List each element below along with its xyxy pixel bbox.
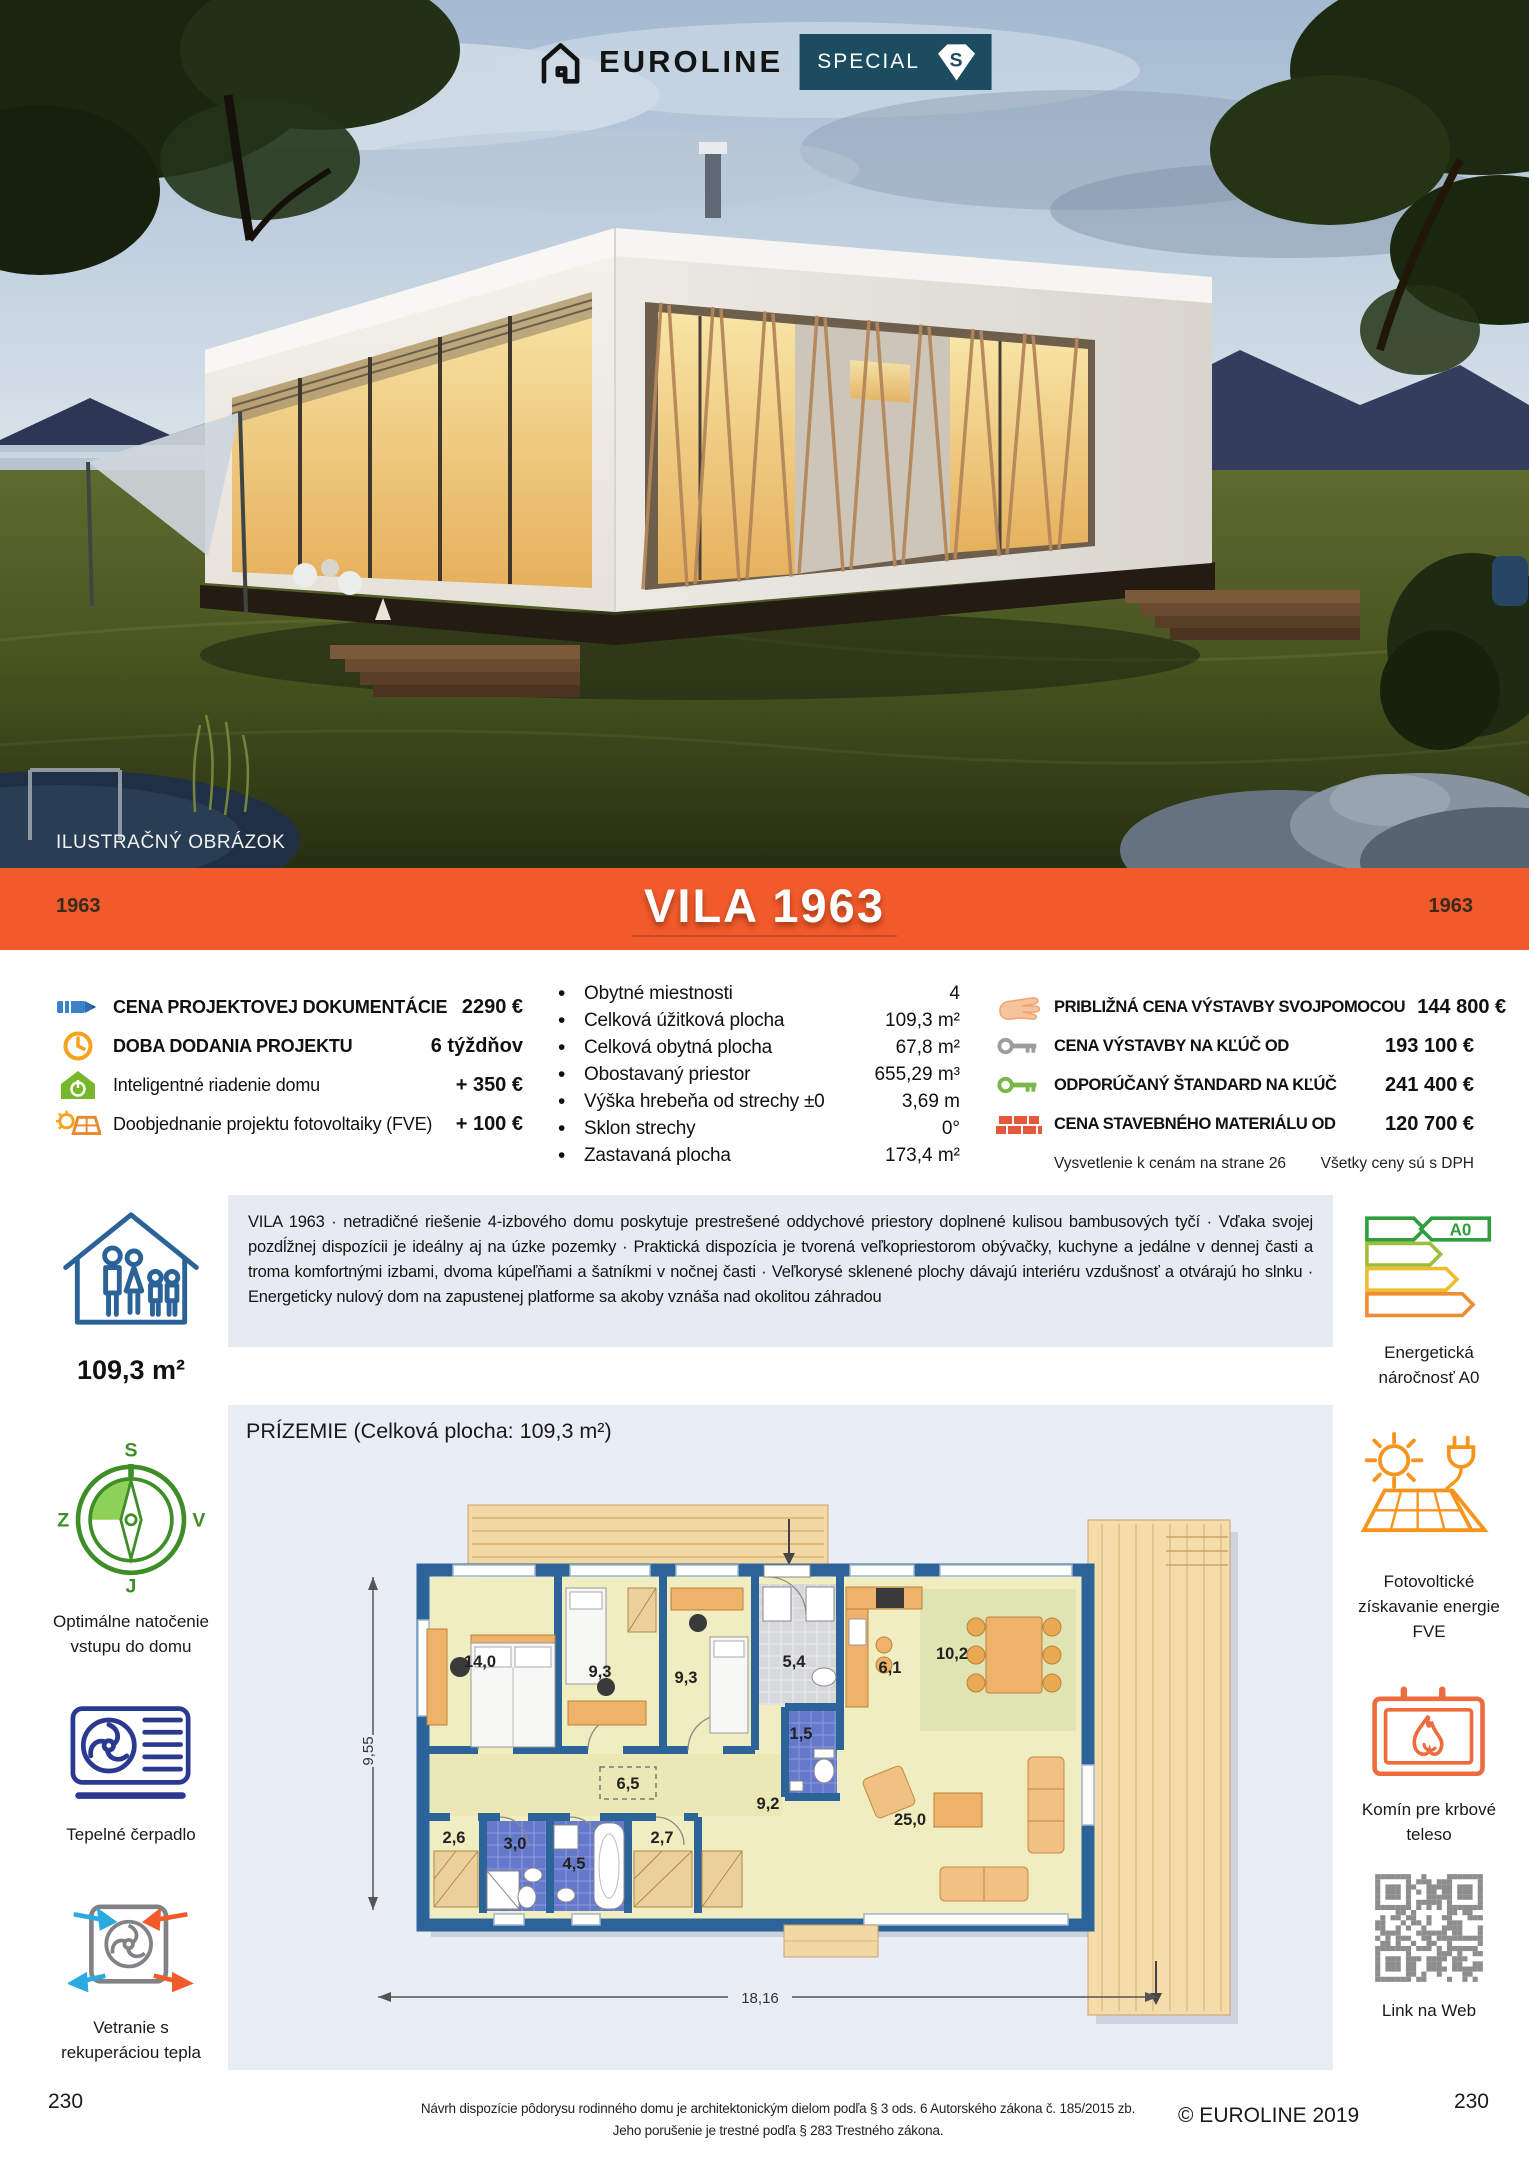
ventilation-label: Vetranie s rekuperáciou tepla [46,2016,216,2065]
bullet-icon: • [558,1117,584,1141]
house-family-icon [56,1207,206,1329]
bullet-icon: • [558,982,584,1006]
info-value: 6 týždňov [431,1035,523,1058]
info-label: Doobjednanie projektu fotovoltaiky (FVE) [113,1114,444,1135]
info-strip: CENA PROJEKTOVEJ DOKUMENTÁCIE 2290 € DOB… [0,950,1529,1182]
spec-label: Výška hrebeňa od strechy ±0 [584,1091,902,1113]
info-label: CENA STAVEBNÉHO MATERIÁLU OD [1054,1115,1373,1134]
info-row: DOBA DODANIA PROJEKTU 6 týždňov [55,1031,523,1061]
compass-icon: S V J Z [52,1438,210,1596]
catalog-page: EUROLINE SPECIAL S ILUSTRAČNÝ OBRÁZOK 19… [0,0,1529,2160]
info-row: CENA VÝSTAVBY NA KĽÚČ OD 193 100 € [996,1031,1474,1061]
room-area-label: 2,6 [443,1829,466,1847]
euroline-house-icon [537,39,583,85]
orientation-label: Optimálne natočenie vstupu do domu [47,1610,215,1659]
spec-row: •Výška hrebeňa od strechy ±03,69 m [558,1088,960,1115]
clock-icon [55,1029,101,1063]
spec-row: •Celková obytná plocha67,8 m² [558,1034,960,1061]
key-green-icon [996,1070,1042,1100]
info-label: ODPORÚČANÝ ŠTANDARD NA KĽÚČ [1054,1076,1373,1095]
bricks-icon [996,1108,1042,1140]
qr-code [1370,1869,1488,1987]
key-gray-icon [996,1031,1042,1061]
smart-home-icon [55,1068,101,1102]
info-value: 2290 € [462,996,523,1019]
spec-label: Obostavaný priestor [584,1064,874,1086]
room-area-label: 6,1 [879,1659,902,1677]
legal-note: Návrh dispozície pôdorysu rodinného domu… [398,2098,1158,2141]
compass-south-label: J [126,1575,137,1596]
info-label: CENA VÝSTAVBY NA KĽÚČ OD [1054,1037,1373,1056]
footnote-right: Všetky ceny sú s DPH [1321,1155,1474,1173]
special-badge: SPECIAL S [799,34,992,90]
room-area-label: 2,7 [651,1829,674,1847]
spec-row: •Obostavaný priestor655,29 m³ [558,1061,960,1088]
room-area-label: 9,3 [675,1669,698,1687]
spec-label: Sklon strechy [584,1118,942,1140]
entry-deck [468,1505,828,1570]
spec-value: 4 [949,983,960,1005]
hero-photo: EUROLINE SPECIAL S ILUSTRAČNÝ OBRÁZOK [0,0,1529,870]
room-area-label: 6,5 [617,1775,640,1793]
bullet-icon: • [558,1144,584,1168]
floor-plan: 14,0 9,3 9,3 5,4 6,1 10,2 1,5 6,5 9,2 25… [228,1405,1333,2070]
width-dimension-label: 18,16 [741,1990,779,2007]
info-row: Inteligentné riadenie domu + 350 € [55,1070,523,1100]
room-area-label: 3,0 [504,1835,527,1853]
room-area-label: 1,5 [790,1725,813,1743]
info-label: Inteligentné riadenie domu [113,1075,444,1096]
floorplan-section: PRÍZEMIE (Celková plocha: 109,3 m²) [228,1405,1333,2070]
terrace [1088,1520,1230,2015]
hand-icon [996,991,1042,1023]
qr-label: Link na Web [1382,1999,1476,2024]
spec-value: 109,3 m² [885,1010,960,1032]
info-label: DOBA DODANIA PROJEKTU [113,1036,419,1057]
info-row: Doobjednanie projektu fotovoltaiky (FVE)… [55,1109,523,1139]
heat-pump-icon [67,1703,195,1805]
info-row: ODPORÚČANÝ ŠTANDARD NA KĽÚČ 241 400 € [996,1070,1474,1100]
sidebar-right: A0 Energetická náročnosť A0 Fotovolti [1336,1185,1522,2024]
legal-line-2: Jeho porušenie je trestné podľa § 283 Tr… [398,2120,1158,2142]
heatpump-label: Tepelné čerpadlo [61,1823,201,1848]
bullet-icon: • [558,1090,584,1114]
info-value: 193 100 € [1385,1035,1474,1058]
ventilation-icon [68,1890,194,2000]
solar-project-icon [55,1109,101,1139]
info-value: 241 400 € [1385,1074,1474,1097]
spec-label: Celková úžitková plocha [584,1010,885,1032]
special-gem-icon: S [936,41,978,83]
illustration-note: ILUSTRAČNÝ OBRÁZOK [56,832,285,854]
title-banner: 1963 VILA 1963 1963 [0,868,1529,950]
height-dimension-label: 9,55 [360,1736,377,1765]
description-text: VILA 1963 · netradičné riešenie 4-izbové… [228,1195,1333,1347]
pencil-icon [55,992,101,1022]
spec-row: •Sklon strechy0° [558,1115,960,1142]
room-area-label: 5,4 [783,1653,807,1671]
energy-label-icon: A0 [1359,1211,1499,1319]
photovoltaic-icon [1358,1432,1500,1550]
spec-label: Celková obytná plocha [584,1037,896,1059]
info-label: PRIBLIŽNÁ CENA VÝSTAVBY SVOJPOMOCOU [1054,998,1405,1017]
spec-value: 173,4 m² [885,1145,960,1167]
model-code-left: 1963 [56,895,101,918]
total-area-value: 109,3 m² [77,1355,185,1386]
model-code-right: 1963 [1429,895,1474,918]
pricing-footnotes: Vysvetlenie k cenám na strane 26 Všetky … [996,1155,1474,1173]
spec-row: •Zastavaná plocha173,4 m² [558,1142,960,1169]
info-row: CENA PROJEKTOVEJ DOKUMENTÁCIE 2290 € [55,992,523,1022]
project-pricing-column: CENA PROJEKTOVEJ DOKUMENTÁCIE 2290 € DOB… [55,992,523,1139]
spec-value: 67,8 m² [896,1037,960,1059]
sidebar-left: 109,3 m² S V J Z Optimálne natočenie vst… [40,1185,222,2065]
room-area-label: 9,3 [589,1663,612,1681]
floorplan-heading: PRÍZEMIE (Celková plocha: 109,3 m²) [246,1419,612,1444]
energy-class-value: A0 [1450,1220,1472,1239]
bullet-icon: • [558,1063,584,1087]
brand-header: EUROLINE SPECIAL S [537,34,992,90]
copyright: © EUROLINE 2019 [1178,2104,1359,2128]
info-row: PRIBLIŽNÁ CENA VÝSTAVBY SVOJPOMOCOU 144 … [996,992,1474,1022]
pv-label: Fotovoltické získavanie energie FVE [1344,1570,1514,1644]
info-value: + 350 € [456,1074,523,1097]
svg-text:S: S [950,51,964,72]
compass-east-label: V [192,1509,205,1531]
page-number-right: 230 [1454,2090,1489,2114]
fireplace-icon [1367,1686,1491,1782]
spec-value: 3,69 m [902,1091,960,1113]
bullet-icon: • [558,1036,584,1060]
spec-label: Zastavaná plocha [584,1145,885,1167]
specs-column: •Obytné miestnosti4 •Celková úžitková pl… [558,980,960,1169]
brand-name: EUROLINE [599,44,783,80]
info-row: CENA STAVEBNÉHO MATERIÁLU OD 120 700 € [996,1109,1474,1139]
compass-north-label: S [124,1440,137,1462]
spec-value: 655,29 m³ [874,1064,960,1086]
build-pricing-column: PRIBLIŽNÁ CENA VÝSTAVBY SVOJPOMOCOU 144 … [996,992,1474,1173]
page-number-left: 230 [48,2090,83,2114]
spec-row: •Celková úžitková plocha109,3 m² [558,1007,960,1034]
chimney-label: Komín pre krbové teleso [1354,1798,1504,1847]
info-value: + 100 € [456,1113,523,1136]
house-photo-illustration [0,0,1529,870]
legal-line-1: Návrh dispozície pôdorysu rodinného domu… [398,2098,1158,2120]
spec-row: •Obytné miestnosti4 [558,980,960,1007]
room-area-label: 25,0 [894,1811,926,1829]
compass-west-label: Z [57,1509,69,1531]
spec-label: Obytné miestnosti [584,983,949,1005]
bullet-icon: • [558,1009,584,1033]
spec-value: 0° [942,1118,960,1140]
room-area-label: 4,5 [563,1855,586,1873]
info-value: 144 800 € [1417,996,1506,1019]
footnote-left: Vysvetlenie k cenám na strane 26 [1054,1155,1286,1173]
room-area-label: 14,0 [464,1653,496,1671]
page-title: VILA 1963 [632,882,897,937]
special-label: SPECIAL [817,50,920,74]
info-label: CENA PROJEKTOVEJ DOKUMENTÁCIE [113,997,450,1018]
energy-label: Energetická náročnosť A0 [1354,1341,1504,1390]
info-value: 120 700 € [1385,1113,1474,1136]
room-area-label: 9,2 [757,1795,780,1813]
room-area-label: 10,2 [936,1645,968,1663]
